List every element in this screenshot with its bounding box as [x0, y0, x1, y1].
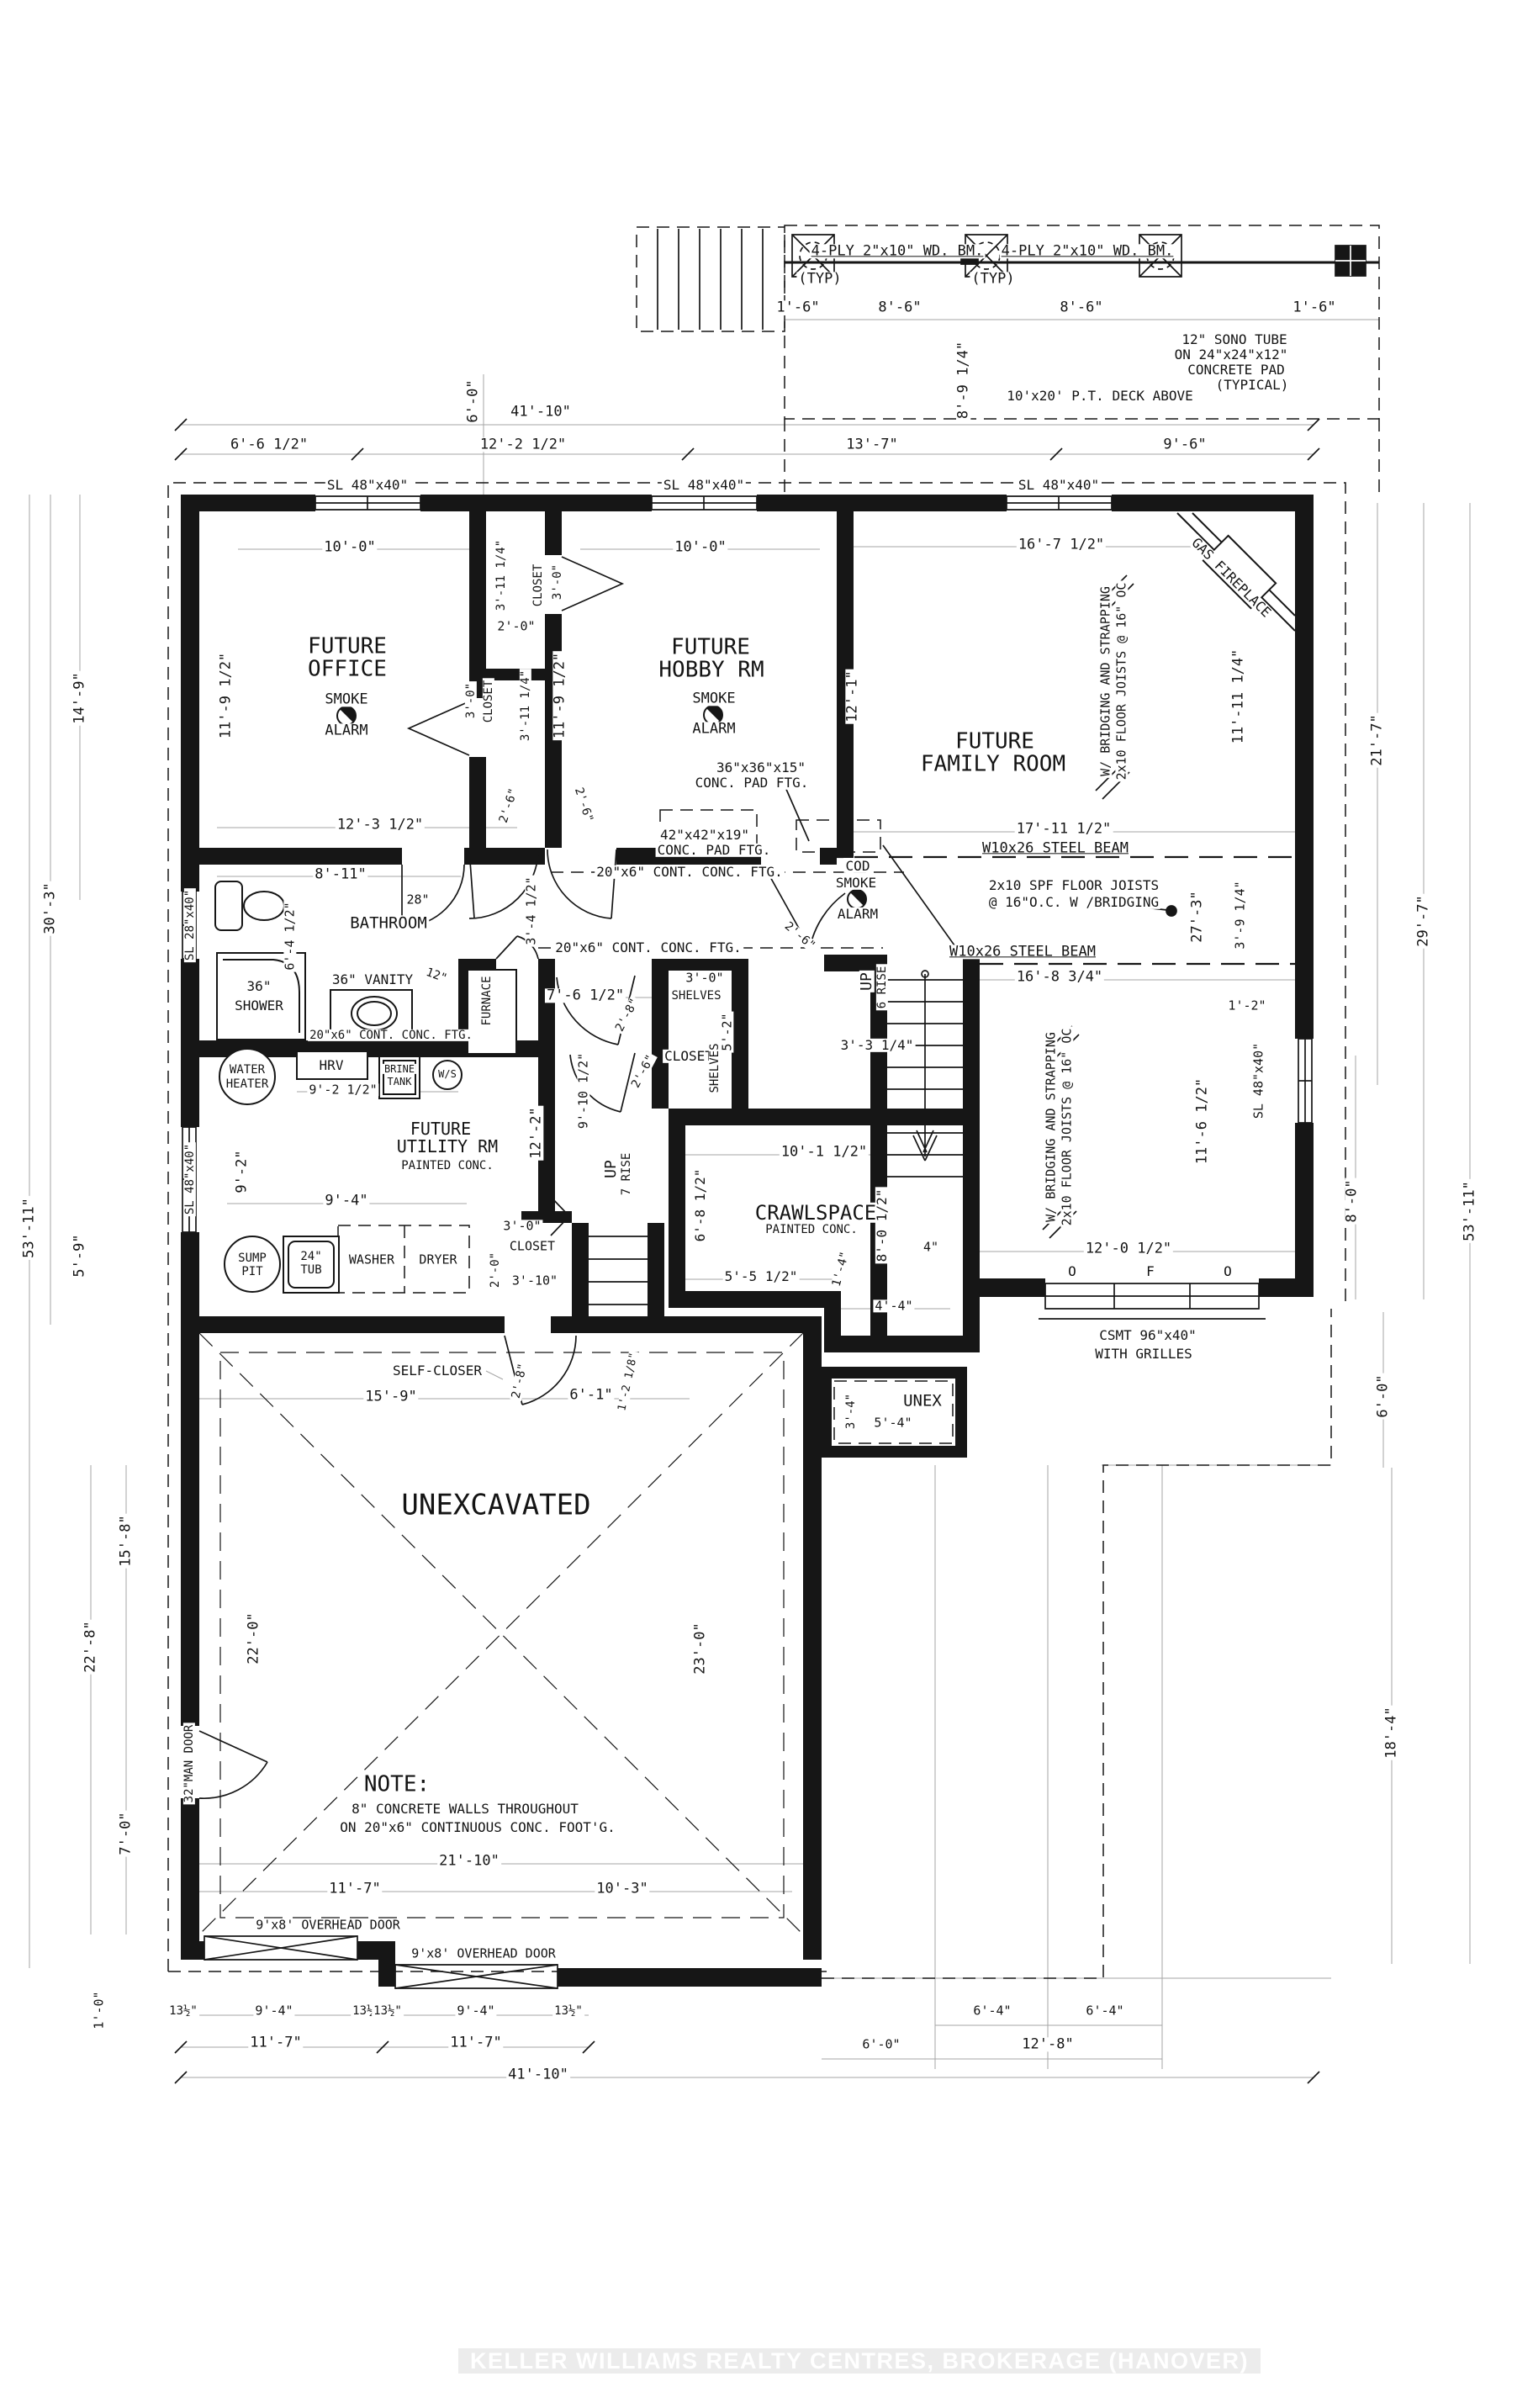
dashed-construction-lines: [168, 225, 1379, 1978]
stairs: [589, 229, 963, 1305]
toilet-bowl: [244, 892, 284, 920]
floor-plan-drawing: [0, 0, 1533, 2408]
sump-pit: [225, 1236, 280, 1292]
toilet-tank: [215, 881, 242, 930]
fixtures: [215, 513, 1295, 1293]
water-softener: [433, 1061, 462, 1089]
doors: [199, 557, 845, 1798]
floor-plan-page: 4-PLY 2"x10" WD. BM.4-PLY 2"x10" WD. BM.…: [0, 0, 1533, 2408]
brokerage-footer-text: KELLER WILLIAMS REALTY CENTRES, BROKERAG…: [470, 2348, 1249, 2374]
furnace: [468, 970, 516, 1054]
deck-posts: [792, 235, 1366, 277]
shower: [217, 953, 305, 1040]
hrv: [297, 1051, 367, 1079]
brokerage-footer: KELLER WILLIAMS REALTY CENTRES, BROKERAG…: [458, 2348, 1261, 2374]
water-heater: [219, 1049, 275, 1104]
